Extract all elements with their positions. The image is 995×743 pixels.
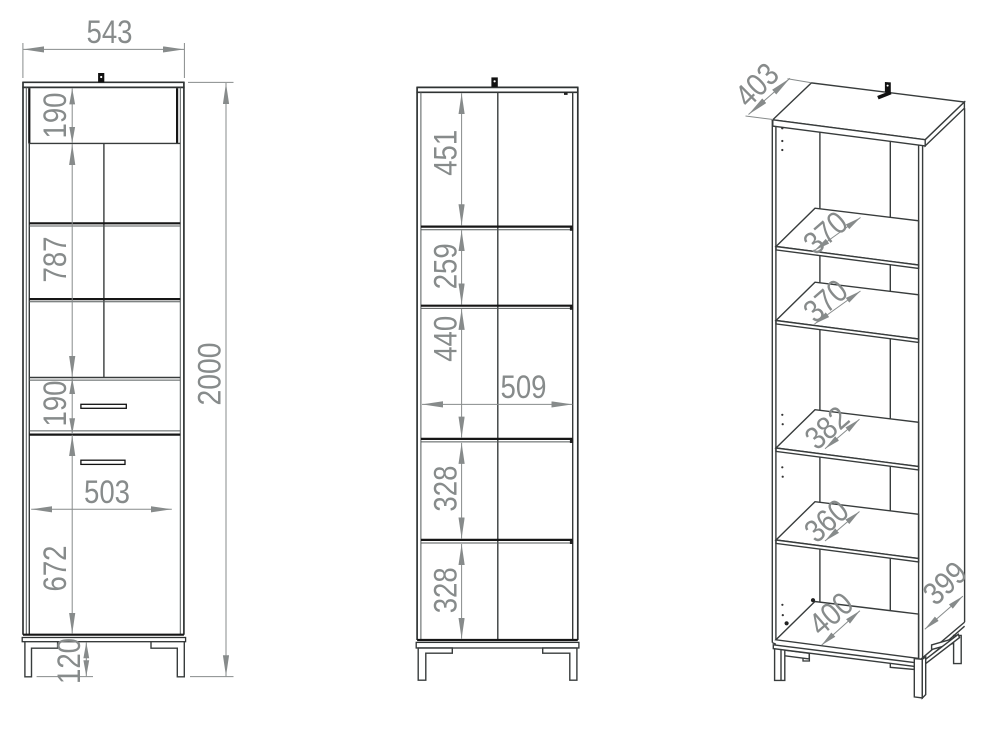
svg-text:328: 328 (428, 466, 464, 512)
svg-text:509: 509 (501, 369, 547, 405)
svg-text:503: 503 (84, 474, 130, 510)
svg-text:451: 451 (428, 130, 464, 176)
svg-text:259: 259 (428, 243, 464, 289)
svg-text:120: 120 (51, 638, 87, 684)
svg-text:328: 328 (428, 567, 464, 613)
svg-text:2000: 2000 (192, 343, 228, 406)
svg-text:787: 787 (37, 237, 73, 283)
svg-text:672: 672 (37, 546, 73, 592)
svg-text:190: 190 (37, 93, 73, 139)
svg-text:190: 190 (37, 381, 73, 427)
svg-text:440: 440 (428, 316, 464, 362)
svg-text:543: 543 (87, 14, 133, 50)
